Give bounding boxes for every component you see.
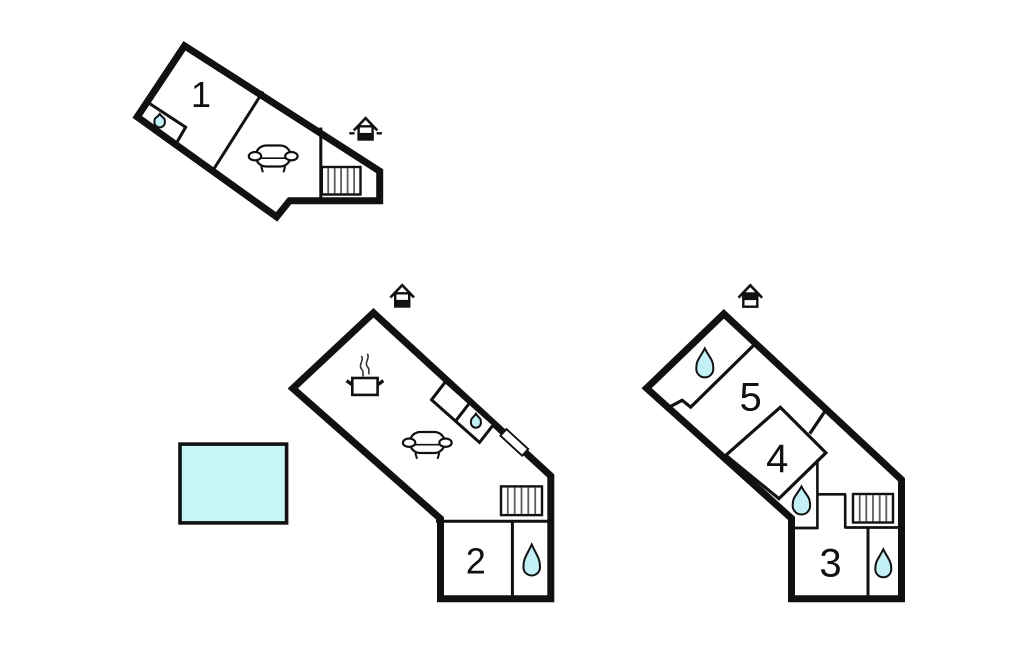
svg-text:4: 4 [766,437,788,481]
svg-text:2: 2 [466,541,486,582]
svg-text:1: 1 [191,74,211,115]
svg-text:3: 3 [819,542,841,586]
svg-text:5: 5 [739,376,761,420]
